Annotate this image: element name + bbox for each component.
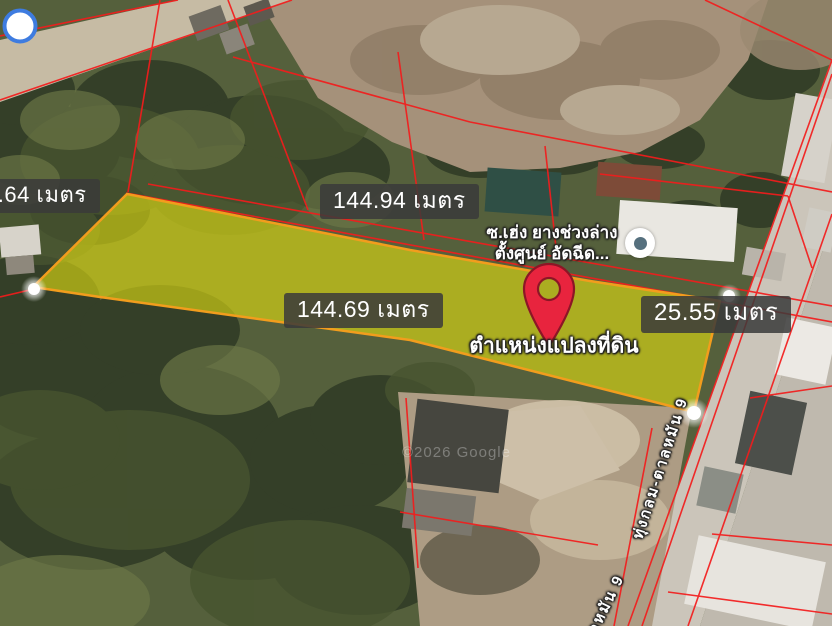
- business-poi-label[interactable]: ซ.เฮ่ง ยางช่วงล่าง ตั้งศูนย์ อัดฉีด...: [487, 222, 618, 265]
- business-name-line1: ซ.เฮ่ง ยางช่วงล่าง: [487, 222, 618, 243]
- plot-position-caption: ตำแหน่งแปลงที่ดิน: [469, 330, 638, 363]
- measurement-label-top: 144.94 เมตร: [320, 184, 479, 219]
- poi-dot: [634, 237, 647, 250]
- business-poi-icon[interactable]: [625, 228, 655, 258]
- measurement-label-right: 25.55 เมตร: [641, 296, 791, 333]
- measurement-label-middle: 144.69 เมตร: [284, 293, 443, 328]
- map-canvas[interactable]: 3.64 เมตร 144.94 เมตร 144.69 เมตร 25.55 …: [0, 0, 832, 626]
- map-watermark: ©2026 Google: [402, 444, 511, 461]
- measurement-label-left: 3.64 เมตร: [0, 179, 100, 213]
- blue-dot-marker-icon: [3, 9, 38, 44]
